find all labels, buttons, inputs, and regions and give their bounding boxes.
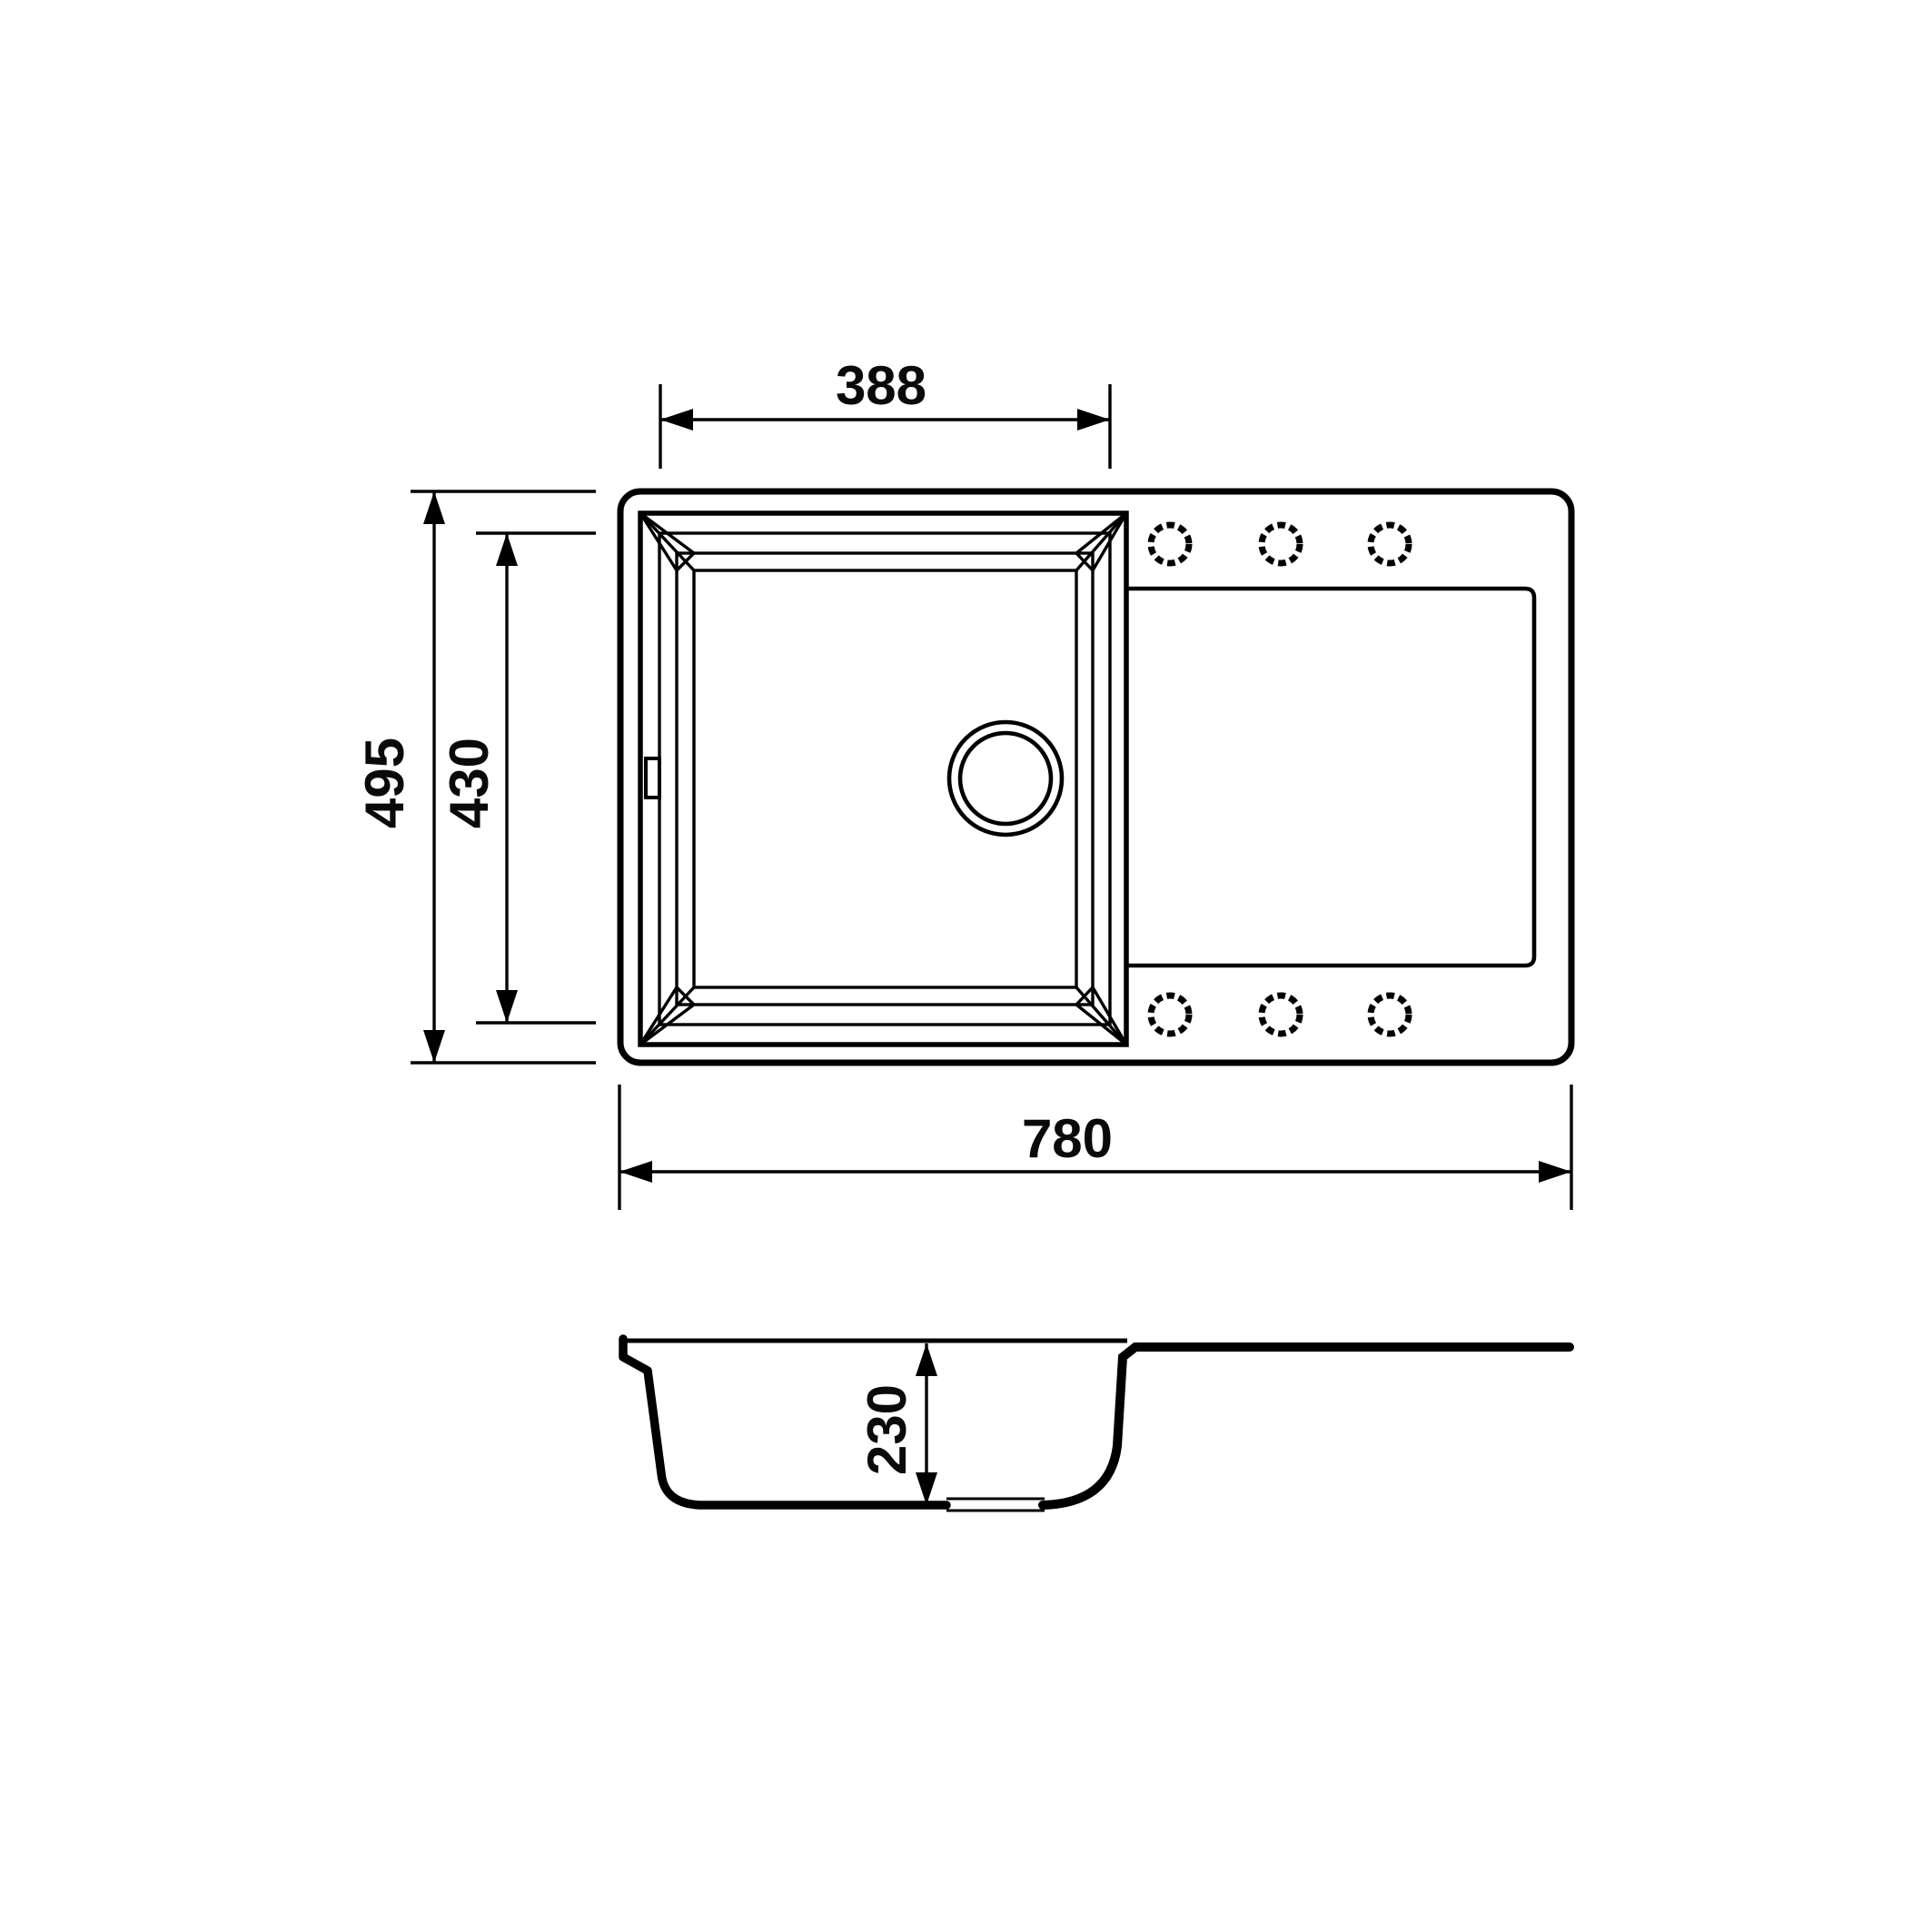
technical-drawing-page: 388 495 430 780 — [0, 0, 1932, 1932]
dimension-bowl-depth: 230 — [857, 1343, 937, 1505]
drainboard-outline — [1126, 589, 1534, 966]
faucet-hole-icon — [1151, 996, 1189, 1034]
sink-outline — [620, 491, 1571, 1063]
arrow-right-icon — [1077, 409, 1110, 431]
section-bowl-right-profile — [1043, 1347, 1570, 1505]
dimension-overall-width: 780 — [619, 1085, 1571, 1210]
dimension-label: 230 — [857, 1384, 917, 1475]
bowl-outer-rect — [640, 513, 1126, 1045]
overflow-marker — [646, 758, 659, 798]
dimension-label: 780 — [1022, 1108, 1113, 1169]
dimension-bowl-opening-depth: 430 — [439, 533, 596, 1023]
bowl-corner-facets-bottom-right — [1076, 987, 1126, 1045]
arrow-down-icon — [916, 1472, 937, 1505]
dimension-label: 388 — [836, 355, 926, 416]
faucet-holes — [1151, 525, 1409, 1034]
faucet-hole-icon — [1371, 996, 1409, 1034]
bowl-floor-rect — [694, 570, 1076, 987]
section-view: 230 — [620, 1339, 1570, 1511]
faucet-hole-icon — [1262, 525, 1300, 563]
arrow-left-icon — [660, 409, 693, 431]
top-view — [620, 491, 1571, 1063]
arrow-down-icon — [496, 990, 518, 1023]
arrow-up-icon — [916, 1343, 937, 1376]
arrow-up-icon — [423, 491, 445, 524]
faucet-hole-icon — [1262, 996, 1300, 1034]
drain-circles — [949, 722, 1062, 835]
dimension-label: 430 — [439, 738, 500, 828]
faucet-hole-icon — [1371, 525, 1409, 563]
bowl-bevel-rect-2 — [659, 533, 1110, 1025]
bowl-corner-facets-top-right — [1076, 513, 1126, 570]
bowl-bevel-rect-3 — [677, 553, 1093, 1005]
dimension-bowl-opening-width: 388 — [660, 355, 1110, 469]
arrow-up-icon — [496, 533, 518, 566]
bowl-corner-facets-top-left — [640, 513, 694, 570]
dimension-label: 495 — [354, 738, 415, 828]
sink-drawing-canvas: 388 495 430 780 — [0, 0, 1932, 1932]
faucet-hole-icon — [1151, 525, 1189, 563]
section-drain-flange — [946, 1499, 1045, 1511]
arrow-left-icon — [619, 1161, 652, 1183]
arrow-right-icon — [1539, 1161, 1571, 1183]
bowl-corner-facets-bottom-left — [640, 987, 694, 1045]
arrow-down-icon — [423, 1030, 445, 1063]
